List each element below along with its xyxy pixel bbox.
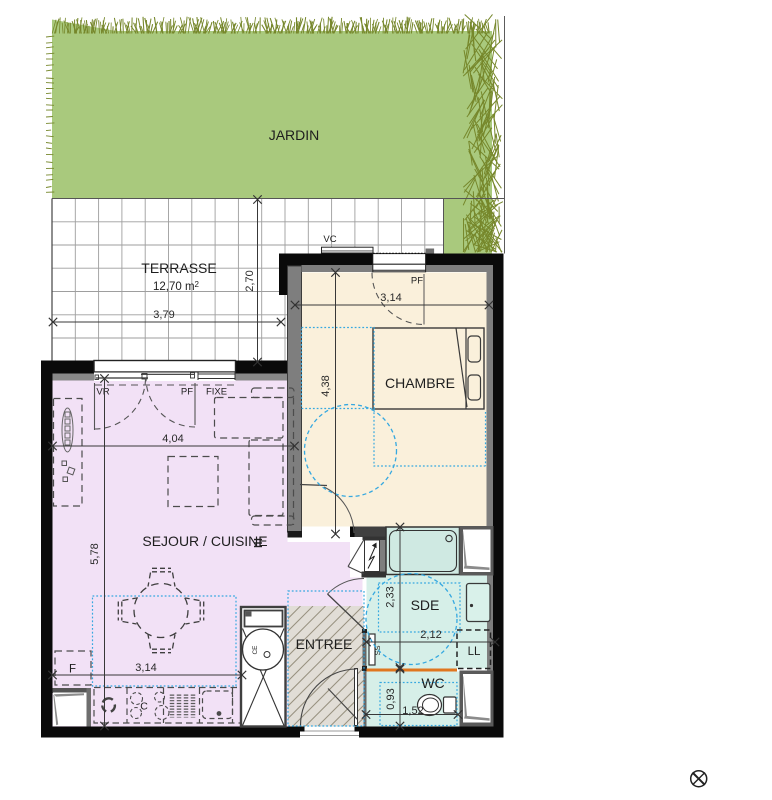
svg-text:VR: VR — [96, 387, 109, 398]
svg-text:SEJOUR / CUISINE: SEJOUR / CUISINE — [142, 533, 267, 549]
svg-text:F: F — [69, 664, 76, 676]
svg-text:5,78: 5,78 — [89, 543, 101, 564]
svg-text:ENTREE: ENTREE — [296, 636, 353, 652]
svg-text:1,52: 1,52 — [402, 705, 423, 717]
svg-text:JARDIN: JARDIN — [269, 127, 320, 143]
svg-text:TERRASSE: TERRASSE — [141, 260, 216, 276]
svg-text:3,14: 3,14 — [135, 662, 156, 674]
svg-text:2,12: 2,12 — [420, 629, 441, 641]
svg-text:0,93: 0,93 — [385, 688, 397, 709]
svg-text:2,70: 2,70 — [244, 270, 256, 291]
svg-text:SDE: SDE — [411, 597, 440, 613]
svg-text:3,14: 3,14 — [380, 292, 401, 304]
svg-text:C: C — [140, 701, 148, 713]
svg-text:FIXE: FIXE — [206, 387, 227, 398]
svg-text:2,33: 2,33 — [385, 586, 397, 607]
svg-text:PF: PF — [411, 276, 423, 287]
svg-text:CE: CE — [252, 645, 259, 655]
svg-text:SS: SS — [373, 645, 382, 655]
svg-text:12,70 m2: 12,70 m2 — [153, 280, 200, 293]
svg-text:4,38: 4,38 — [320, 375, 332, 396]
svg-text:LL: LL — [468, 646, 481, 658]
svg-text:VC: VC — [323, 234, 336, 245]
svg-text:CHAMBRE: CHAMBRE — [385, 375, 455, 391]
svg-text:WC: WC — [421, 675, 444, 691]
svg-text:4,04: 4,04 — [162, 433, 183, 445]
svg-text:PF: PF — [181, 387, 193, 398]
svg-text:3,79: 3,79 — [153, 309, 174, 321]
